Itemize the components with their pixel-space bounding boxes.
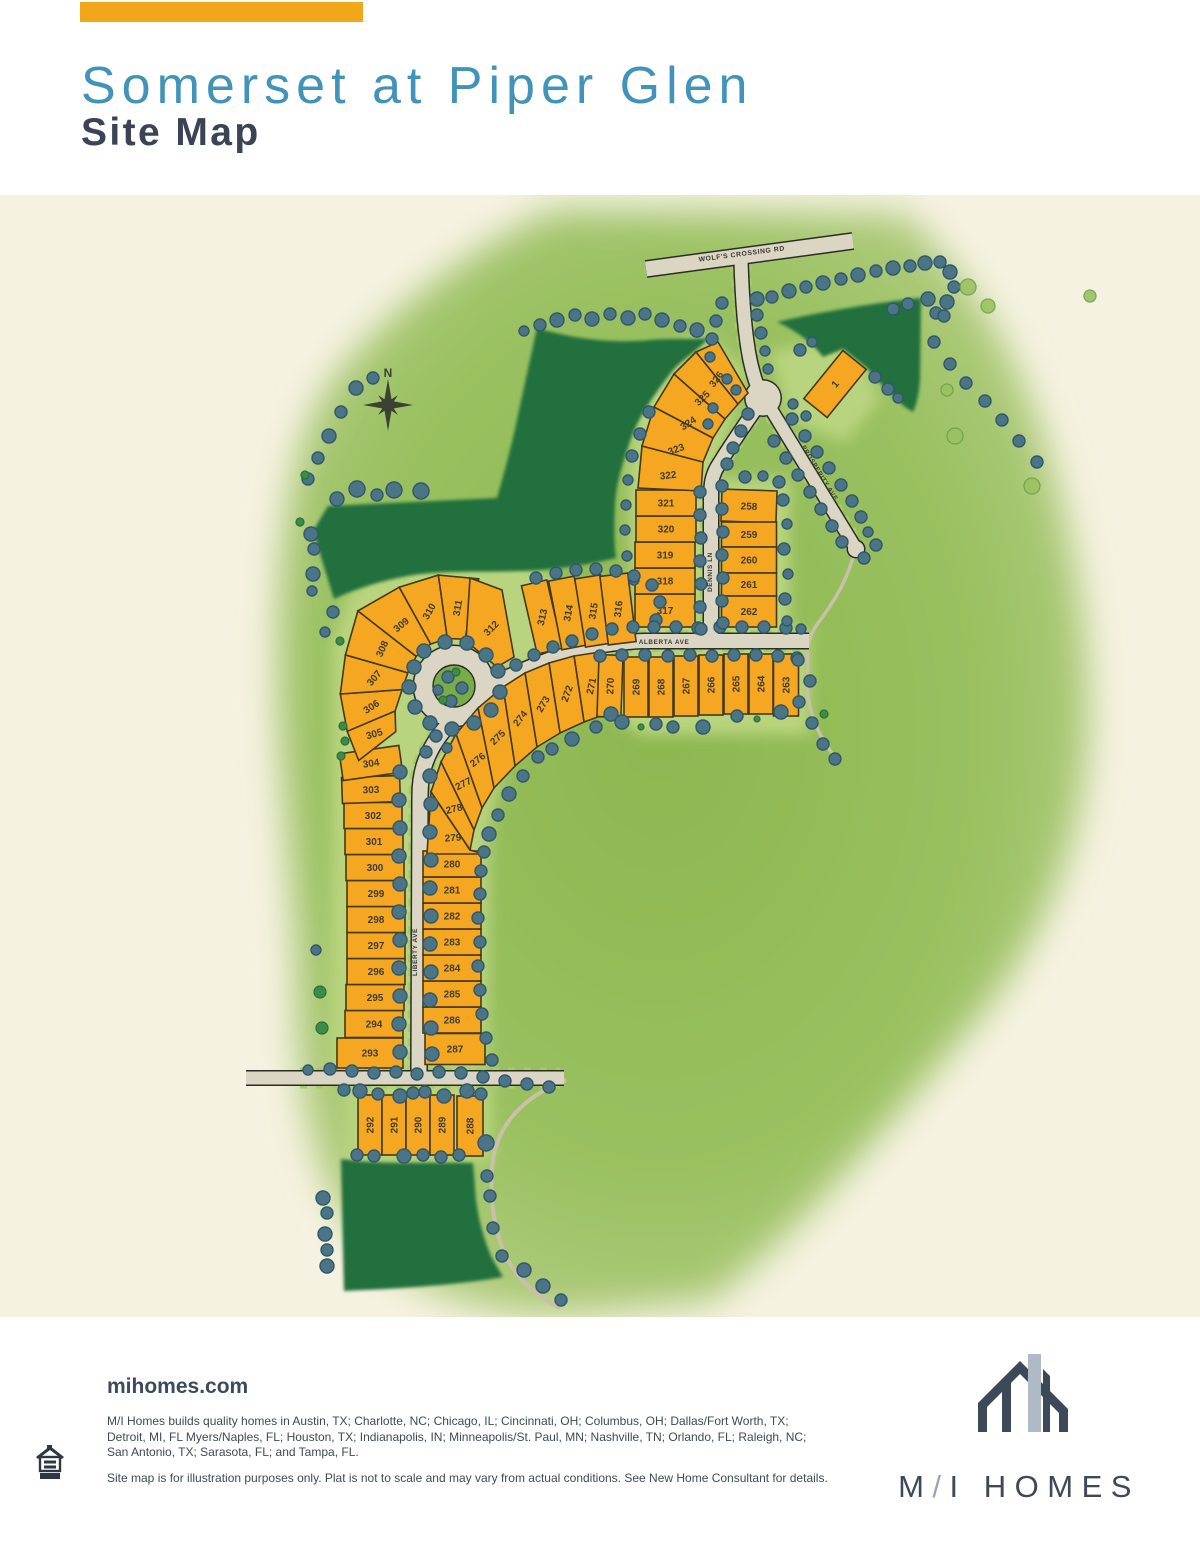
svg-text:285: 285 [444, 990, 461, 1001]
svg-text:266: 266 [707, 676, 718, 693]
svg-text:263: 263 [782, 676, 793, 693]
svg-text:316: 316 [613, 600, 626, 618]
svg-text:303: 303 [363, 785, 380, 797]
svg-text:322: 322 [659, 470, 677, 483]
svg-text:298: 298 [368, 915, 385, 926]
svg-text:269: 269 [632, 678, 643, 695]
svg-text:DENNIS LN: DENNIS LN [707, 552, 714, 592]
svg-text:301: 301 [366, 837, 383, 848]
svg-text:265: 265 [732, 675, 743, 692]
svg-text:281: 281 [444, 886, 461, 897]
svg-text:300: 300 [367, 863, 384, 874]
svg-text:260: 260 [741, 556, 758, 567]
svg-text:294: 294 [366, 1020, 383, 1031]
svg-text:320: 320 [658, 525, 675, 536]
svg-text:302: 302 [365, 811, 382, 822]
svg-text:282: 282 [444, 912, 461, 923]
svg-text:M/I HOMES: M/I HOMES [898, 1469, 1140, 1504]
svg-text:318: 318 [657, 577, 674, 588]
svg-text:280: 280 [444, 860, 461, 871]
svg-text:304: 304 [362, 757, 380, 770]
svg-text:267: 267 [682, 677, 693, 694]
svg-text:299: 299 [368, 889, 385, 900]
svg-text:268: 268 [657, 678, 668, 695]
svg-text:291: 291 [390, 1116, 401, 1133]
svg-text:292: 292 [366, 1116, 377, 1133]
svg-text:279: 279 [444, 832, 462, 844]
svg-text:258: 258 [740, 501, 757, 513]
svg-text:321: 321 [658, 499, 675, 510]
svg-text:319: 319 [657, 551, 674, 562]
svg-text:283: 283 [444, 938, 461, 949]
svg-text:297: 297 [368, 941, 385, 952]
svg-text:264: 264 [757, 675, 768, 692]
svg-text:293: 293 [362, 1049, 379, 1060]
svg-text:290: 290 [414, 1116, 425, 1133]
svg-text:296: 296 [368, 967, 385, 978]
svg-text:259: 259 [741, 530, 758, 541]
svg-text:295: 295 [367, 993, 384, 1004]
svg-text:270: 270 [605, 677, 617, 694]
svg-text:261: 261 [741, 580, 758, 591]
svg-text:N: N [384, 366, 393, 380]
svg-text:289: 289 [438, 1116, 449, 1133]
svg-text:262: 262 [741, 607, 758, 618]
svg-text:286: 286 [444, 1016, 461, 1027]
svg-text:284: 284 [444, 964, 461, 975]
svg-text:288: 288 [466, 1117, 477, 1134]
svg-text:LIBERTY AVE: LIBERTY AVE [412, 928, 419, 976]
svg-text:ALBERTA AVE: ALBERTA AVE [639, 639, 690, 646]
svg-text:287: 287 [447, 1045, 464, 1056]
